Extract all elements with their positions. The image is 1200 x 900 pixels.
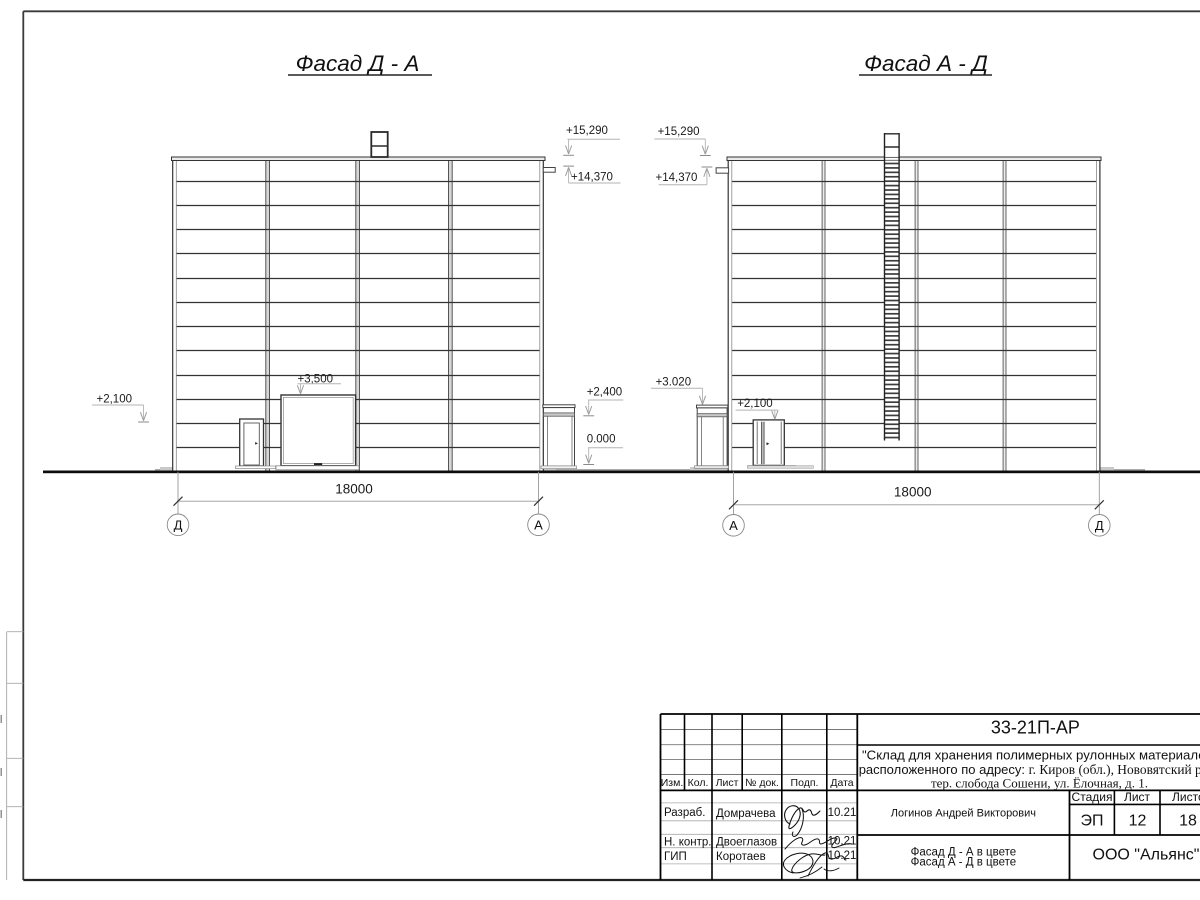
svg-text:+15,290: +15,290 [566, 125, 608, 137]
svg-text:Д: Д [1095, 518, 1104, 533]
svg-text:18: 18 [1179, 813, 1197, 830]
svg-text:Логинов Андрей Викторович: Логинов Андрей Викторович [891, 808, 1036, 820]
svg-text:Фасад А - Д в цвете: Фасад А - Д в цвете [911, 857, 1016, 869]
svg-text:А: А [534, 518, 543, 533]
svg-text:ГИП: ГИП [664, 851, 687, 863]
svg-text:Коротаев: Коротаев [716, 851, 766, 863]
svg-text:18000: 18000 [335, 482, 373, 497]
svg-text:Разраб.: Разраб. [664, 807, 705, 819]
svg-text:+2,100: +2,100 [97, 394, 133, 406]
svg-text:0.000: 0.000 [587, 434, 616, 446]
svg-text:Листов: Листов [1172, 790, 1200, 804]
svg-text:Кол.: Кол. [688, 777, 709, 789]
svg-text:+14,370: +14,370 [571, 172, 613, 184]
svg-text:тер. слобода Сошени, ул. Ёлочн: тер. слобода Сошени, ул. Ёлочная, д. 1. [931, 776, 1148, 791]
svg-text:"Склад для хранения полимерных: "Склад для хранения полимерных рулонных … [862, 748, 1200, 763]
svg-text:+2,400: +2,400 [587, 386, 623, 398]
svg-text:+2,100: +2,100 [737, 398, 773, 410]
svg-text:Н. контр.: Н. контр. [664, 837, 711, 849]
svg-text:Подп.: Подп. [791, 777, 819, 789]
svg-text:10.21: 10.21 [828, 807, 857, 819]
svg-text:ЭП: ЭП [1081, 813, 1104, 830]
svg-text:А: А [729, 518, 738, 533]
svg-text:+15,290: +15,290 [658, 126, 700, 138]
svg-text:Лист: Лист [1124, 790, 1151, 804]
svg-text:Стадия: Стадия [1072, 790, 1113, 804]
svg-text:18000: 18000 [894, 485, 932, 500]
svg-text:Д: Д [174, 518, 183, 533]
svg-text:33-21П-АР: 33-21П-АР [991, 718, 1080, 738]
svg-text:Двоеглазов: Двоеглазов [716, 837, 777, 849]
svg-text:№ док.: № док. [745, 777, 779, 789]
svg-text:+14,370: +14,370 [656, 172, 698, 184]
svg-text:Лист: Лист [716, 777, 739, 789]
svg-text:Изм.: Изм. [661, 777, 684, 789]
svg-text:12: 12 [1129, 813, 1147, 830]
svg-text:ООО "Альянс": ООО "Альянс" [1093, 847, 1200, 864]
svg-text:Фасад А - Д: Фасад А - Д [864, 51, 988, 76]
svg-text:Дата: Дата [830, 777, 853, 789]
svg-text:Домрачева: Домрачева [716, 808, 776, 820]
svg-text:+3.020: +3.020 [656, 377, 692, 389]
svg-text:Фасад Д - А: Фасад Д - А [296, 51, 420, 76]
